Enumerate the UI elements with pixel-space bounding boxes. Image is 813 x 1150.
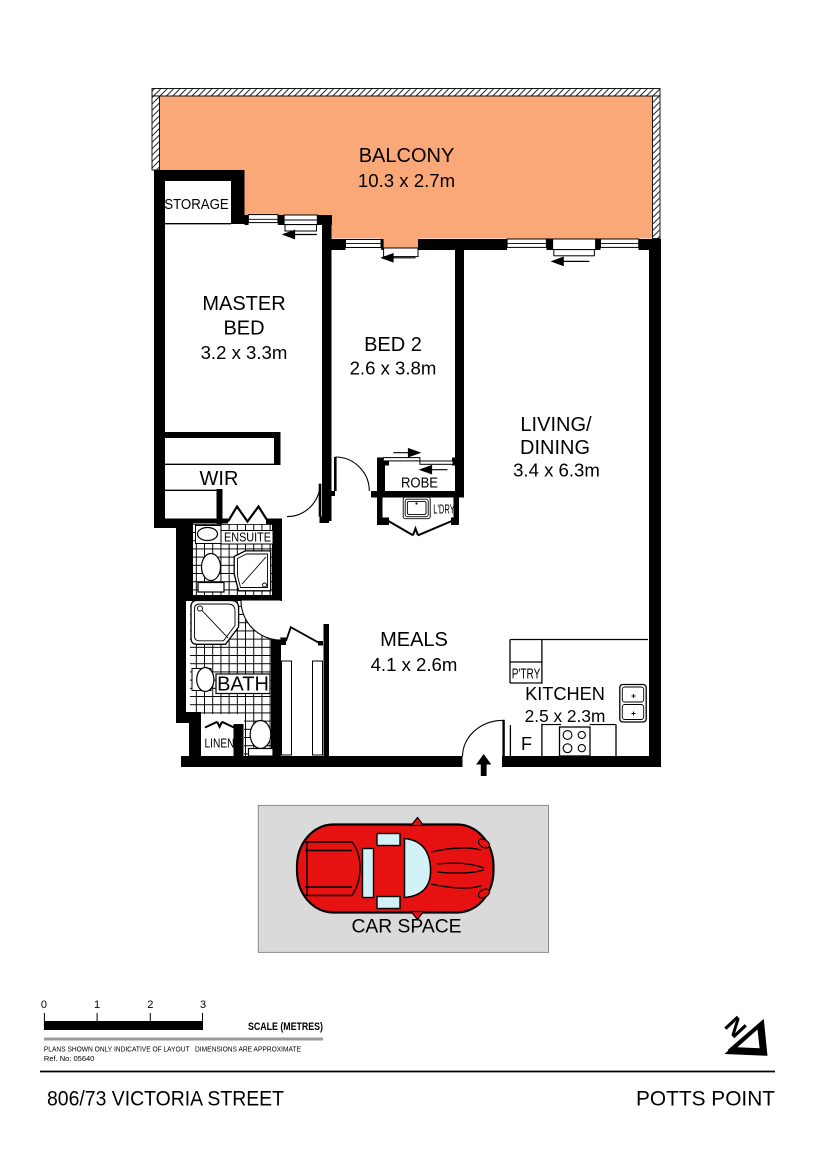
- svg-text:2.6 x 3.8m: 2.6 x 3.8m: [350, 358, 437, 379]
- svg-text:10.3 x 2.7m: 10.3 x 2.7m: [358, 170, 455, 191]
- svg-text:ROBE: ROBE: [401, 475, 438, 492]
- svg-text:LINEN: LINEN: [205, 736, 235, 751]
- svg-text:KITCHEN: KITCHEN: [525, 684, 605, 704]
- svg-text:BATH: BATH: [217, 674, 269, 696]
- svg-text:806/73 VICTORIA STREET: 806/73 VICTORIA STREET: [47, 1088, 284, 1111]
- svg-text:SCALE (METRES): SCALE (METRES): [248, 1021, 323, 1033]
- svg-text:POTTS POINT: POTTS POINT: [636, 1088, 775, 1111]
- svg-text:2.5 x 2.3m: 2.5 x 2.3m: [525, 706, 606, 726]
- svg-text:1: 1: [94, 999, 100, 1011]
- svg-text:Ref. No: 05640: Ref. No: 05640: [44, 1054, 94, 1063]
- svg-text:MEALS: MEALS: [380, 629, 448, 651]
- svg-text:ENSUITE: ENSUITE: [224, 530, 271, 545]
- svg-text:BED: BED: [223, 318, 264, 340]
- svg-text:2: 2: [147, 999, 153, 1011]
- svg-text:BED 2: BED 2: [364, 334, 422, 356]
- svg-text:PLANS SHOWN ONLY INDICATIVE OF: PLANS SHOWN ONLY INDICATIVE OF LAYOUT DI…: [44, 1045, 301, 1054]
- svg-text:3.2 x 3.3m: 3.2 x 3.3m: [201, 342, 288, 363]
- svg-text:F: F: [521, 734, 532, 754]
- svg-text:P'TRY: P'TRY: [512, 667, 541, 683]
- svg-text:CAR SPACE: CAR SPACE: [351, 917, 461, 938]
- svg-text:L'DRY: L'DRY: [433, 502, 455, 517]
- svg-text:STORAGE: STORAGE: [164, 197, 229, 213]
- svg-text:BALCONY: BALCONY: [359, 145, 455, 167]
- svg-text:DINING: DINING: [520, 437, 590, 459]
- svg-text:0: 0: [41, 999, 47, 1011]
- svg-text:MASTER: MASTER: [202, 293, 285, 315]
- svg-text:WIR: WIR: [200, 468, 239, 490]
- svg-text:LIVING/: LIVING/: [520, 414, 592, 436]
- svg-text:3.4 x 6.3m: 3.4 x 6.3m: [513, 460, 600, 481]
- svg-text:4.1 x 2.6m: 4.1 x 2.6m: [371, 654, 458, 675]
- svg-text:3: 3: [200, 999, 206, 1011]
